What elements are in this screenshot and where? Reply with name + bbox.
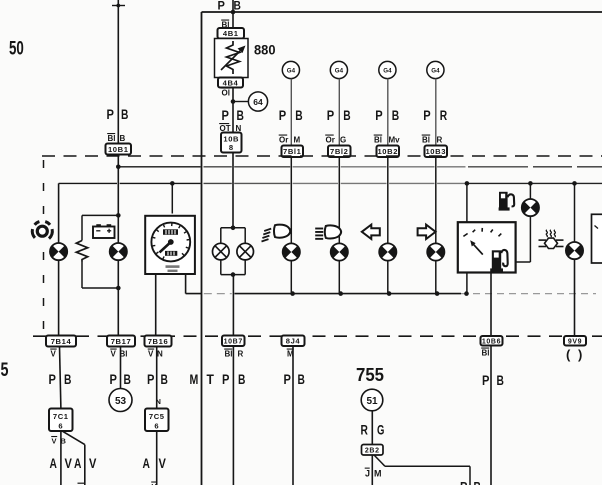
svg-text:A: A [74,456,82,471]
svg-text:64: 64 [253,97,263,107]
svg-text:P: P [218,0,225,13]
svg-text:P: P [284,372,291,387]
svg-text:A: A [50,456,58,471]
svg-text:P: P [49,372,56,387]
svg-text:Bl: Bl [108,134,116,143]
svg-text:7B14: 7B14 [51,337,72,346]
svg-text:Bl: Bl [482,349,490,358]
svg-text:8: 8 [229,143,234,152]
svg-text:G: G [377,423,384,438]
svg-text:V: V [89,456,96,471]
svg-text:V: V [111,350,117,359]
svg-text:B: B [234,0,242,13]
svg-text:51: 51 [366,396,378,407]
svg-text:P: P [375,108,382,123]
svg-text:G4: G4 [335,68,344,75]
svg-text:B: B [238,372,246,387]
svg-text:B: B [237,108,245,123]
svg-text:8J4: 8J4 [286,337,301,346]
svg-text:10B1: 10B1 [108,145,129,154]
svg-text:5: 5 [1,360,9,381]
svg-text:R: R [440,108,448,123]
svg-text:(: ( [566,347,571,362]
svg-text:G4: G4 [287,68,296,75]
svg-text:B: B [161,372,169,387]
svg-text:P: P [107,107,114,122]
svg-text:4B1: 4B1 [223,29,239,38]
svg-text:Ol: Ol [222,89,230,98]
svg-text:G4: G4 [383,68,392,75]
svg-text:7B17: 7B17 [111,337,132,346]
svg-text:6: 6 [58,422,63,431]
svg-text:): ) [578,347,582,362]
svg-text:N: N [157,350,163,359]
svg-text:B: B [121,107,129,122]
svg-text:7C5: 7C5 [149,412,165,421]
svg-text:Mv: Mv [389,136,401,145]
svg-text:10B2: 10B2 [377,147,398,156]
svg-text:B: B [392,108,400,123]
svg-text:J: J [365,469,370,479]
svg-text:6: 6 [154,422,159,431]
svg-text:B: B [124,372,132,387]
svg-text:755: 755 [356,365,384,385]
svg-text:V: V [148,350,154,359]
svg-text:7B16: 7B16 [148,337,169,346]
svg-text:B: B [497,373,505,388]
svg-text:V: V [52,437,57,446]
svg-text:2B2: 2B2 [365,448,380,455]
svg-text:A: A [143,456,151,471]
svg-text:10B7: 10B7 [224,339,243,346]
svg-text:N: N [156,397,161,406]
svg-text:M: M [190,372,199,387]
svg-text:P: P [482,373,489,388]
svg-text:P: P [423,108,430,123]
svg-text:50: 50 [9,38,24,60]
svg-text:4B4: 4B4 [223,78,239,87]
svg-text:T: T [207,372,215,387]
svg-text:V: V [159,456,166,471]
svg-text:7Bl2: 7Bl2 [330,147,348,156]
svg-text:M: M [374,469,382,479]
svg-text:P: P [147,372,154,387]
svg-text:10B6: 10B6 [482,339,501,346]
svg-text:Or: Or [326,136,335,145]
svg-text:10B3: 10B3 [425,147,446,156]
svg-text:B: B [343,108,351,123]
svg-text:R: R [238,350,244,359]
svg-text:9V9: 9V9 [568,339,582,346]
svg-text:B: B [120,134,126,143]
svg-text:P: P [222,108,229,123]
svg-text:P: P [110,372,117,387]
svg-text:R: R [437,136,443,145]
svg-text:G4: G4 [431,68,440,75]
svg-text:B: B [295,108,303,123]
svg-text:B: B [474,480,482,485]
svg-text:Bl: Bl [374,136,382,145]
svg-text:53: 53 [115,396,127,407]
svg-text:R: R [361,423,369,438]
svg-text:Bl: Bl [225,350,233,359]
svg-text:P: P [222,372,229,387]
svg-text:V: V [51,350,57,359]
svg-text:P: P [327,108,334,123]
svg-text:G: G [340,136,346,145]
svg-text:P: P [460,480,467,485]
svg-text:880: 880 [254,42,276,58]
svg-text:Bl: Bl [422,136,430,145]
svg-text:Or: Or [279,136,288,145]
svg-text:7Bl1: 7Bl1 [283,147,302,156]
svg-text:7C1: 7C1 [53,412,69,421]
svg-text:P: P [279,108,286,123]
svg-text:V: V [65,456,72,471]
svg-text:B: B [64,372,72,387]
svg-text:M: M [294,136,301,145]
svg-text:B: B [298,372,306,387]
